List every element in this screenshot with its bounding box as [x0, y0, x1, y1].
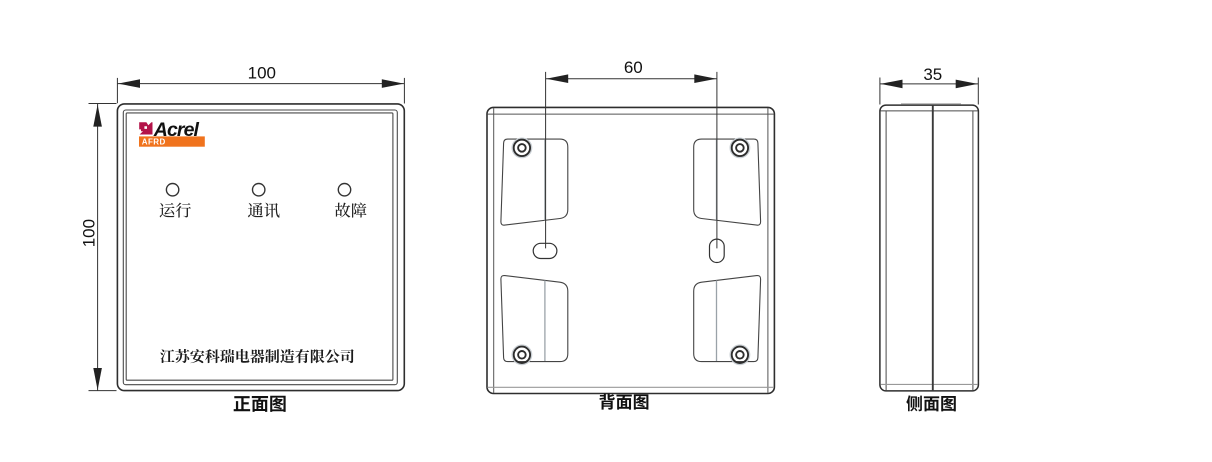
svg-text:35: 35	[923, 65, 942, 84]
svg-text:60: 60	[624, 58, 643, 77]
svg-text:100: 100	[248, 63, 276, 82]
svg-text:100: 100	[79, 219, 98, 247]
svg-text:AFRD: AFRD	[142, 137, 166, 146]
